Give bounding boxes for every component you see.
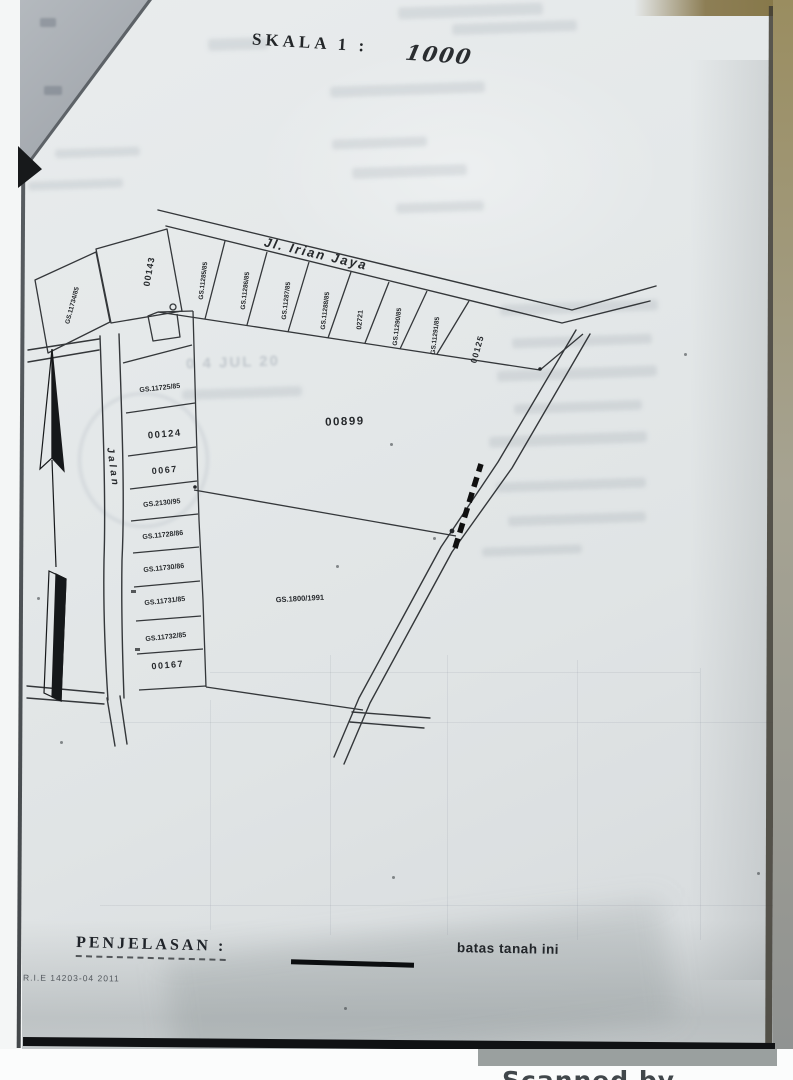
parcel-label-strip-2: GS.11286/85 <box>240 271 252 310</box>
map-roads <box>27 210 656 764</box>
parcel-label-1800-1991: GS.1800/1991 <box>275 593 324 605</box>
parcel-label-strip-3: GS.11287/85 <box>281 281 293 320</box>
parcel-label-00125: 00125 <box>468 334 486 364</box>
parcel-label-00167: 00167 <box>151 659 184 672</box>
parcel-label-strip-1: GS.11285/85 <box>198 261 210 300</box>
survey-corner-markers <box>131 367 542 651</box>
legend-title: PENJELASAN : <box>76 934 227 961</box>
watermark-clip: Scanned by TapScanner <box>480 1049 780 1080</box>
parcel-label-11725: GS.11725/85 <box>139 383 180 394</box>
parcel-label-strip-5: 02721 <box>356 310 365 330</box>
parcel-label-2130: GS.2130/95 <box>143 498 181 509</box>
parcel-label-0067: 0067 <box>151 464 178 476</box>
parcel-label-11730: GS.11730/86 <box>143 563 184 574</box>
form-reference-number: R.I.E 14203-04 2011 <box>23 973 120 984</box>
parcel-label-11732: GS.11732/85 <box>145 632 186 643</box>
parcel-label-11734: GS.11734/85 <box>64 286 81 325</box>
north-arrow-icon <box>40 349 66 701</box>
parcel-label-00143: 00143 <box>142 256 157 287</box>
legend-item-label: batas tanah ini <box>457 940 559 957</box>
parcel-label-strip-4: GS.11288/85 <box>320 291 332 330</box>
parcel-label-11731: GS.11731/85 <box>144 596 185 607</box>
table-surface-right <box>773 0 793 1080</box>
parcel-label-00899: 00899 <box>325 415 365 428</box>
parcel-label-00124: 00124 <box>147 428 182 442</box>
cadastral-map-drawing: Jl. Irian Jaya Jalan 00143 GS.11734/85 G… <box>0 0 793 1080</box>
tapscanner-watermark: Scanned by TapScanner <box>502 1066 780 1080</box>
parcel-label-strip-6: GS.11290/85 <box>392 307 404 346</box>
parcel-label-11728: GS.11728/86 <box>142 530 183 541</box>
scanned-land-survey-page: { "doc": { "scale_label": "SKALA 1 :", "… <box>0 0 793 1080</box>
road-label-jalan: Jalan <box>104 447 121 489</box>
